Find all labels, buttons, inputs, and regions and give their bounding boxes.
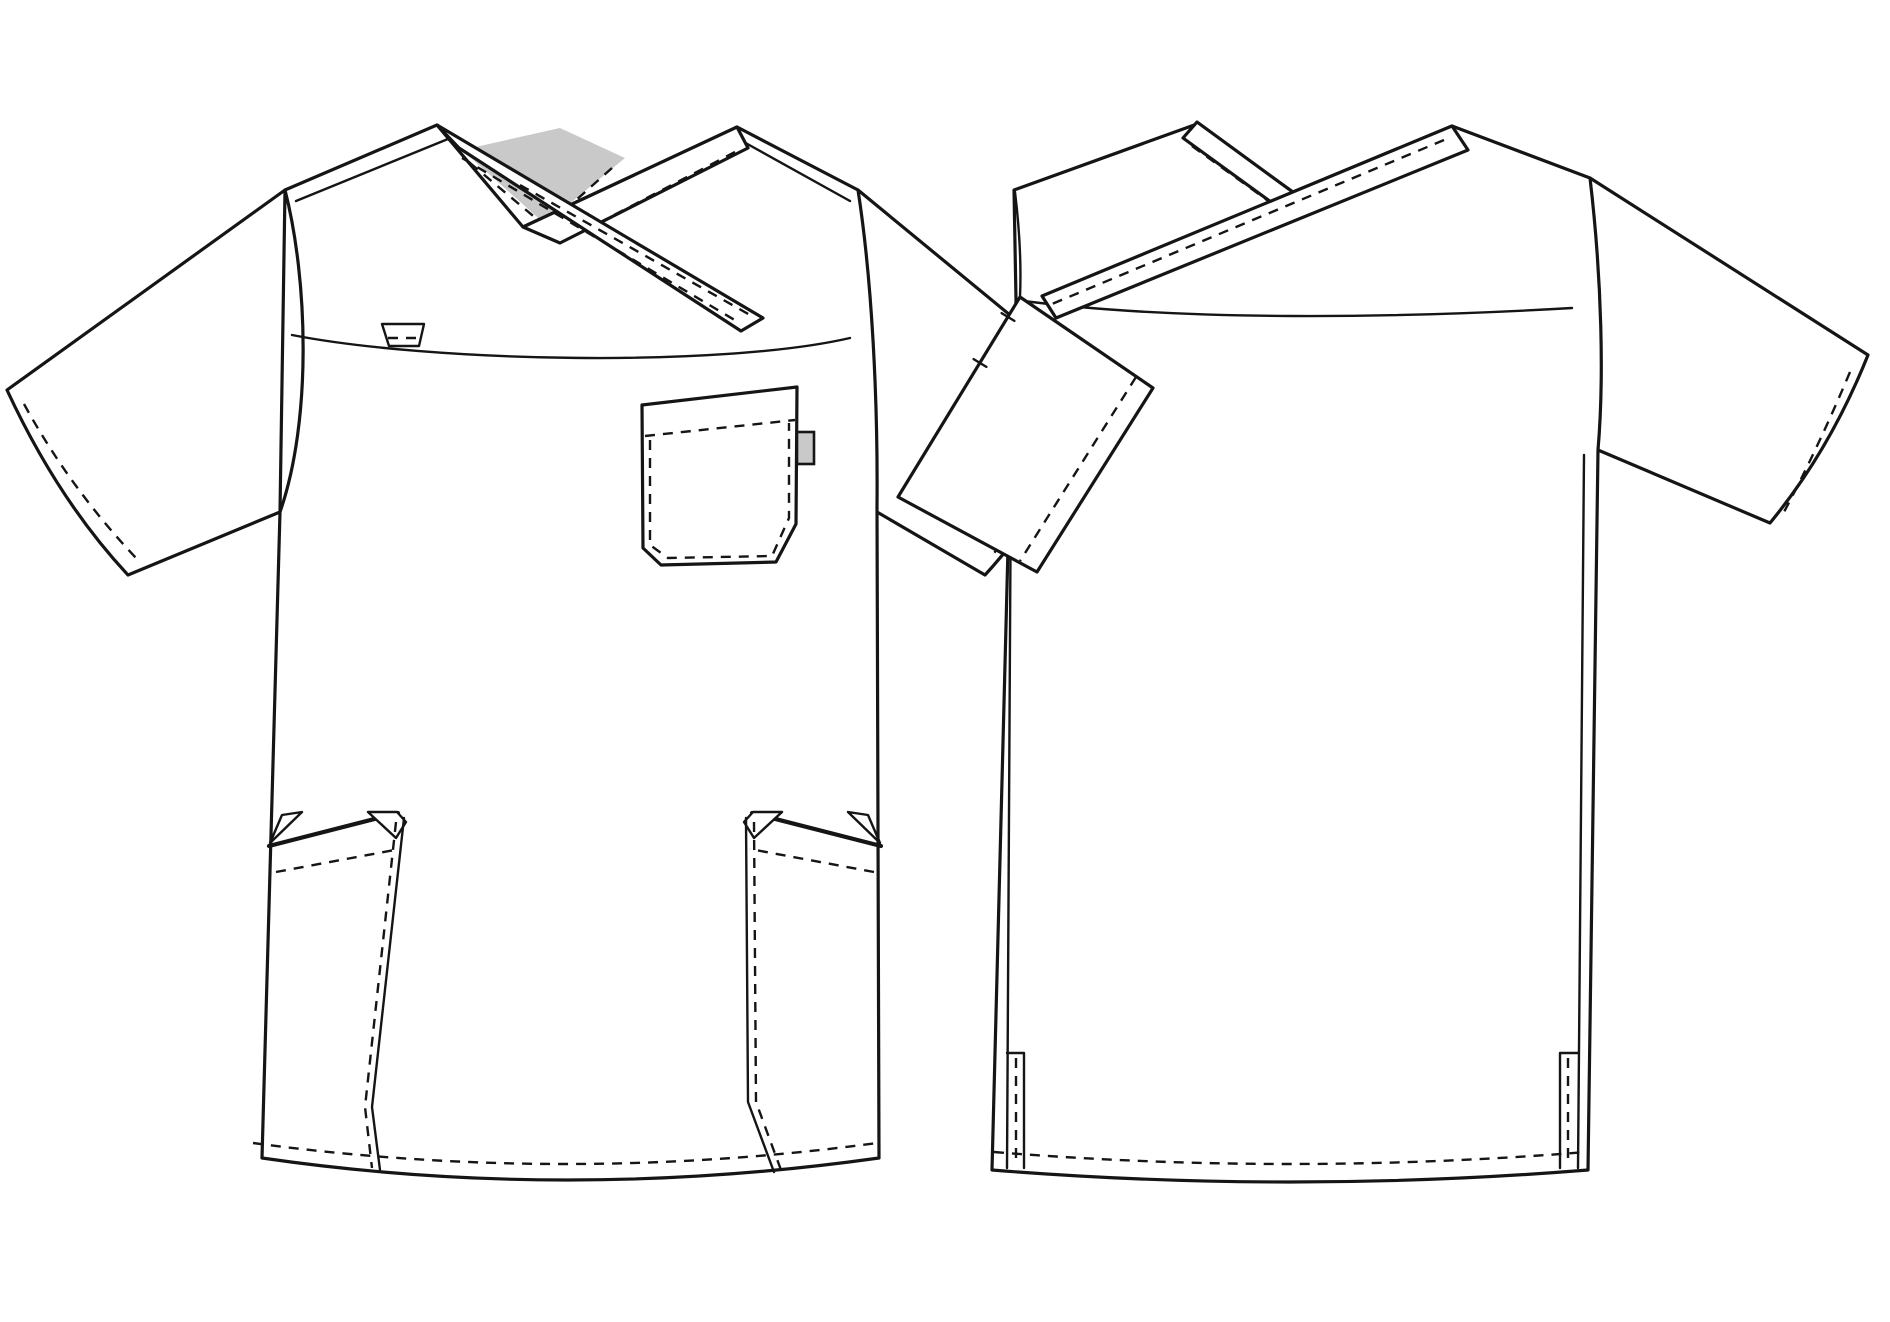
yoke-tab-outline (382, 324, 424, 346)
back-right-sleeve-outline (1590, 178, 1868, 523)
chest-pocket (642, 387, 814, 565)
chest-pocket-label-tab (797, 432, 814, 464)
back-view (898, 122, 1868, 1182)
front-left-sleeve (7, 190, 285, 575)
sketch-canvas (0, 0, 1890, 1322)
front-view (7, 125, 1101, 1180)
chest-pocket-outline (642, 387, 797, 565)
front-body (262, 125, 879, 1180)
scrub-top-flat-sketch (0, 0, 1890, 1322)
front-left-sleeve-outline (7, 190, 285, 575)
yoke-tab (382, 324, 424, 346)
back-right-sleeve (1590, 178, 1868, 523)
